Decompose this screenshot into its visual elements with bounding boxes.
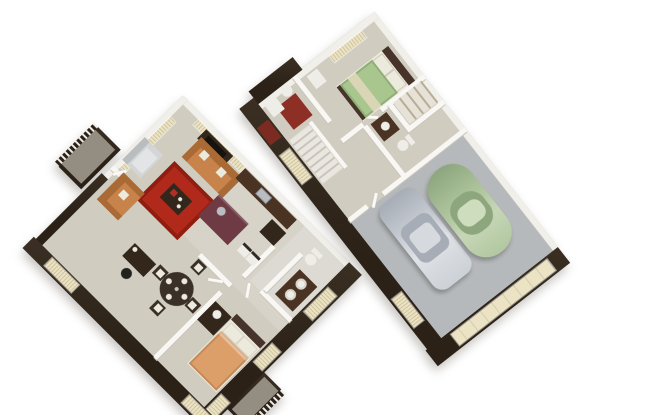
- table-decor: [177, 196, 183, 202]
- floorplan-scene: [0, 0, 650, 415]
- loveseat-pillow: [118, 189, 129, 200]
- table-lamp: [211, 308, 224, 321]
- centerpiece: [174, 286, 180, 292]
- table-decor: [176, 203, 182, 209]
- island-sink: [215, 205, 228, 218]
- chair-seat: [194, 263, 204, 273]
- vanity-sink: [283, 287, 299, 303]
- chair-seat: [153, 303, 163, 313]
- plate: [165, 293, 173, 301]
- chair-seat: [187, 300, 197, 310]
- table-decor-red: [170, 189, 178, 197]
- plate: [180, 293, 188, 301]
- chair-seat: [155, 269, 165, 279]
- vanity-sink: [379, 120, 392, 133]
- plate: [165, 277, 173, 285]
- desk-lamp: [131, 246, 138, 253]
- plate: [180, 277, 188, 285]
- vanity-sink: [293, 276, 309, 292]
